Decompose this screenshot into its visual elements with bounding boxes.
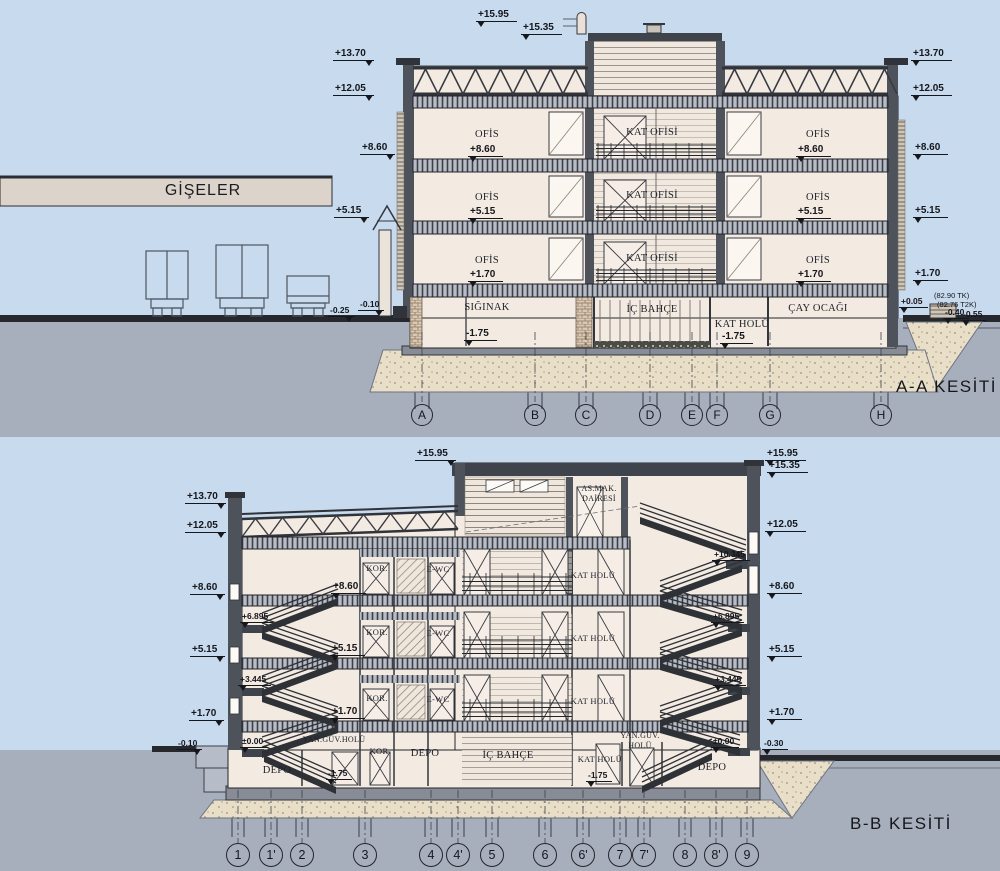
room-label: OFİS [452, 255, 522, 267]
grid-bubble: 6 [533, 843, 557, 867]
elevation-label: +8.60 [767, 582, 802, 594]
road-note: (82.90 TK) [934, 291, 969, 300]
elevation-label: +12.05 [333, 84, 374, 96]
elevation-label: +15.35 [767, 461, 808, 473]
elevation-label: +1.70 [767, 708, 802, 720]
grid-bubble: 5 [480, 843, 504, 867]
elevation-label: +6.895 [240, 612, 273, 623]
room-label: AS.MAK. [575, 485, 623, 494]
grid-bubble: A [411, 404, 433, 426]
room-label: HOLÜ [623, 742, 657, 751]
elevation-label: +6.895 [711, 612, 744, 623]
grid-bubble: F [706, 404, 728, 426]
room-label: E-WC [423, 695, 453, 704]
elevation-label: -1.75 [464, 329, 497, 341]
elevation-label: +12.05 [185, 521, 226, 533]
room-label: DEPO [257, 765, 297, 777]
elevation-label: +1.70 [913, 269, 948, 281]
elevation-label: +5.15 [330, 644, 365, 656]
elevation-label: -1.75 [586, 771, 612, 782]
room-label: OFİS [783, 129, 853, 141]
section-bb-title: B-B KESİTİ [850, 814, 952, 834]
vent-pipe [577, 13, 586, 35]
grid-bubble: 3 [353, 843, 377, 867]
room-label: SIĞINAK [447, 302, 527, 314]
elevation-label: +8.60 [331, 582, 366, 594]
room-label: İÇ BAHÇE [468, 750, 548, 762]
room-label: DAİRESİ [575, 495, 623, 504]
room-label: DEPO [405, 748, 445, 760]
section-bb-static [0, 460, 1000, 871]
grid-bubble: 1 [226, 843, 250, 867]
room-label: OFİS [452, 192, 522, 204]
roof-vent [647, 25, 661, 33]
room-label: KAT OFİSİ [608, 127, 696, 139]
section-aa-title: A-A KESİTİ [896, 377, 997, 397]
elevation-label: +5.15 [767, 645, 802, 657]
grid-bubble: D [639, 404, 661, 426]
elevation-label: +1.70 [330, 707, 365, 719]
elevation-label: +1.70 [796, 270, 831, 282]
left-wall [403, 64, 414, 318]
elevation-label: +15.35 [521, 23, 562, 35]
grid-bubble: 9 [735, 843, 759, 867]
elevation-label: +13.70 [185, 492, 226, 504]
trucks [146, 245, 329, 316]
penthouse [593, 40, 717, 96]
elevation-label: +10.345 [712, 550, 750, 561]
section-aa-static [0, 13, 1000, 438]
room-label: KAT HOLÜ [568, 571, 618, 580]
room-label: OFİS [783, 192, 853, 204]
elevation-label: +1.70 [189, 709, 224, 721]
right-wall [887, 64, 898, 318]
room-label: ÇAY OCAĞI [776, 303, 860, 315]
elevation-label: +13.70 [911, 49, 952, 61]
grid-bubble: E [681, 404, 703, 426]
elevation-label: -1.75 [326, 769, 352, 780]
elevation-label: -0.30 [762, 739, 788, 750]
grid-bubble: 7 [608, 843, 632, 867]
grid-bubble: B [524, 404, 546, 426]
grid-bubble: G [759, 404, 781, 426]
elevation-label: ±0.00 [711, 737, 739, 748]
room-label: DEPO [692, 762, 732, 774]
elevation-label: +8.60 [360, 143, 395, 155]
grid-bubble: 4' [446, 843, 470, 867]
room-label: E-WC [423, 565, 453, 574]
room-label: KAT OFİSİ [608, 253, 696, 265]
elevation-label: +5.15 [468, 207, 503, 219]
elevation-label: -1.75 [720, 332, 753, 344]
room-label: KAT OFİSİ [608, 190, 696, 202]
elevation-label: +13.70 [333, 49, 374, 61]
elevation-label: +12.05 [765, 520, 806, 532]
room-label: KOR [366, 747, 392, 756]
elevation-label: +5.15 [796, 207, 831, 219]
elevation-label: +15.95 [415, 449, 456, 461]
elevation-label: +0.05 [899, 297, 928, 308]
elevation-label: +8.60 [796, 145, 831, 157]
elevation-label: +5.15 [190, 645, 225, 657]
grid-bubble: 4 [419, 843, 443, 867]
grid-bubble: 6' [571, 843, 595, 867]
elevation-label: -0.10 [358, 300, 384, 311]
room-label: İÇ BAHÇE [612, 304, 692, 316]
grid-bubble: 2 [290, 843, 314, 867]
elevation-label: +3.445 [238, 675, 271, 686]
elevation-label: +8.60 [468, 145, 503, 157]
canopy-label: GİŞELER [128, 182, 278, 200]
elevation-label: +1.70 [468, 270, 503, 282]
elevation-label: +12.05 [911, 84, 952, 96]
grid-bubble: 8 [673, 843, 697, 867]
room-label: OFİS [452, 129, 522, 141]
grid-bubble: H [870, 404, 892, 426]
room-label: KAT HOLÜ [568, 634, 618, 643]
room-label: KAT HOLÜ [703, 319, 781, 331]
room-label: KAT HOLÜ [575, 755, 625, 764]
room-label: KAT HOLÜ [568, 697, 618, 706]
room-label: YAN.GÜV. [617, 732, 663, 741]
grid-bubble: 1' [259, 843, 283, 867]
drawing-sheet: +15.95 +15.35 +13.70 +12.05 +8.60 +5.15 … [0, 0, 1000, 871]
room-label: KOR. [363, 628, 391, 637]
room-label: KOR. [363, 694, 391, 703]
elevation-label: +3.445 [713, 675, 746, 686]
bb-right-wall [747, 463, 760, 750]
room-label: KOR. [363, 564, 391, 573]
elevation-label: +15.95 [476, 10, 517, 22]
elevation-label: +8.60 [190, 583, 225, 595]
elevation-label: +5.15 [334, 206, 369, 218]
elevation-label: -0.10 [176, 739, 202, 750]
elevation-label: -0.25 [328, 306, 354, 317]
room-label: OFİS [783, 255, 853, 267]
elevation-label: +5.15 [913, 206, 948, 218]
gravel-band [594, 341, 710, 348]
elevation-label: -0.55 [961, 310, 987, 321]
elevation-label: +8.60 [913, 143, 948, 155]
grid-bubble: 8' [704, 843, 728, 867]
room-label: E-WC [423, 629, 453, 638]
grid-bubble: C [575, 404, 597, 426]
grid-bubble: 7' [632, 843, 656, 867]
elevation-label: ±0.00 [240, 737, 268, 748]
room-label: YAN.GÜV.HOLÜ [301, 736, 367, 745]
